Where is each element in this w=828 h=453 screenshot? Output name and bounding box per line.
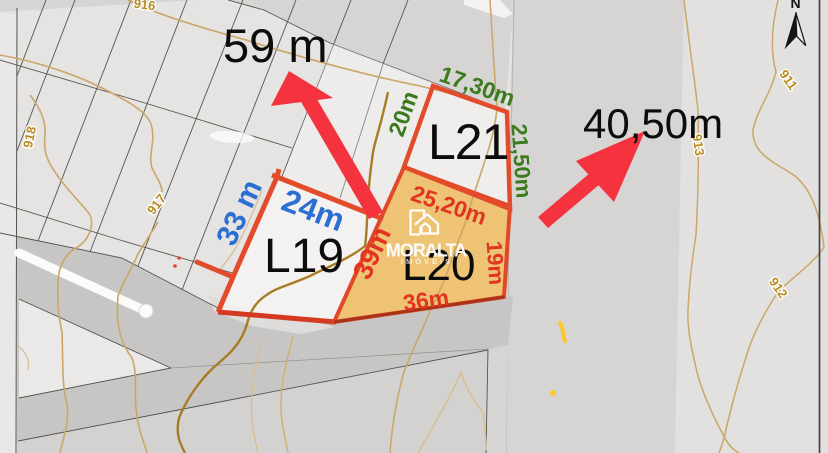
svg-text:L21: L21 xyxy=(428,114,508,170)
svg-text:IMÓVEIS: IMÓVEIS xyxy=(401,257,453,266)
svg-text:40,50m: 40,50m xyxy=(583,100,723,147)
svg-text:N: N xyxy=(790,0,800,11)
svg-text:L19: L19 xyxy=(264,230,344,283)
svg-text:19m: 19m xyxy=(481,240,509,286)
svg-text:59 m: 59 m xyxy=(223,19,328,72)
svg-text:21,50m: 21,50m xyxy=(506,123,536,199)
